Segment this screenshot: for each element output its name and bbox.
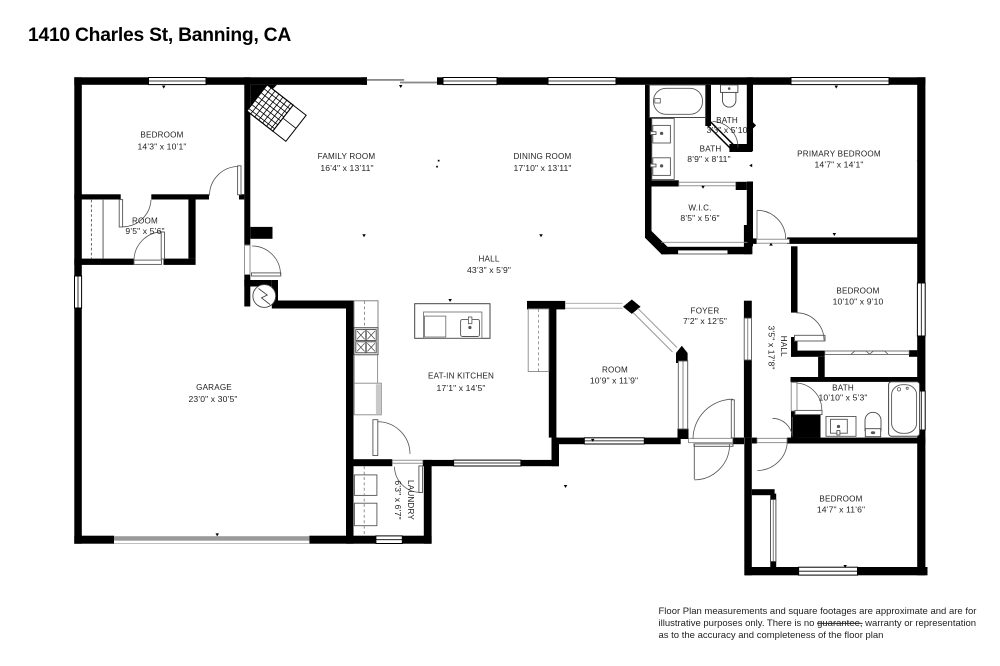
- svg-text:ROOM: ROOM: [602, 366, 628, 375]
- svg-text:10’10" x 9’10: 10’10" x 9’10: [833, 297, 884, 307]
- svg-text:43’3" x 5’9": 43’3" x 5’9": [467, 265, 511, 275]
- svg-text:LAUNDRY: LAUNDRY: [406, 480, 415, 520]
- svg-text:BEDROOM: BEDROOM: [819, 495, 862, 504]
- svg-text:16’4" x 13’11": 16’4" x 13’11": [320, 163, 373, 173]
- svg-text:7’2" x 12’5": 7’2" x 12’5": [683, 316, 727, 326]
- svg-text:BATH: BATH: [832, 384, 854, 393]
- svg-text:FOYER: FOYER: [691, 307, 720, 316]
- svg-text:FAMILY ROOM: FAMILY ROOM: [318, 152, 376, 161]
- svg-text:BEDROOM: BEDROOM: [140, 131, 183, 140]
- svg-text:8’9" x 8’11": 8’9" x 8’11": [687, 154, 730, 164]
- svg-text:3’3" x 5’10: 3’3" x 5’10: [707, 125, 748, 135]
- svg-text:14’3" x 10’1": 14’3" x 10’1": [138, 142, 187, 152]
- svg-text:1410 Charles St, Banning, CA: 1410 Charles St, Banning, CA: [28, 25, 291, 46]
- svg-text:8’5" x 5’6": 8’5" x 5’6": [680, 213, 719, 223]
- svg-text:illustrative purposes only. Th: illustrative purposes only. There is no …: [659, 618, 977, 629]
- svg-text:as to the accuracy and complet: as to the accuracy and completeness of t…: [659, 630, 884, 641]
- svg-text:10’9" x 11’9": 10’9" x 11’9": [590, 376, 638, 386]
- svg-text:Floor Plan measurements and sq: Floor Plan measurements and square foota…: [659, 606, 977, 617]
- svg-text:6’3" x 6’7": 6’3" x 6’7": [393, 480, 403, 519]
- svg-text:10’10" x 5’3": 10’10" x 5’3": [819, 393, 868, 403]
- svg-text:9’5" x 5’6": 9’5" x 5’6": [125, 226, 164, 236]
- svg-text:HALL: HALL: [779, 336, 788, 357]
- svg-text:GARAGE: GARAGE: [196, 383, 232, 392]
- svg-text:ROOM: ROOM: [132, 217, 158, 226]
- svg-text:17’10" x 13’11": 17’10" x 13’11": [513, 163, 571, 173]
- svg-text:14’7" x 14’1": 14’7" x 14’1": [815, 160, 864, 170]
- svg-text:EAT-IN KITCHEN: EAT-IN KITCHEN: [428, 372, 494, 381]
- svg-text:3’5" x 17’8": 3’5" x 17’8": [766, 325, 776, 369]
- svg-text:17’1" x 14’5": 17’1" x 14’5": [437, 383, 486, 393]
- svg-text:PRIMARY BEDROOM: PRIMARY BEDROOM: [797, 150, 881, 159]
- svg-text:W.I.C.: W.I.C.: [688, 204, 711, 213]
- svg-text:DINING ROOM: DINING ROOM: [514, 152, 572, 161]
- svg-text:BATH: BATH: [700, 145, 722, 154]
- svg-text:BEDROOM: BEDROOM: [836, 287, 879, 296]
- svg-text:14’7" x 11’6": 14’7" x 11’6": [817, 505, 865, 515]
- svg-text:23’0" x 30’5": 23’0" x 30’5": [189, 394, 238, 404]
- svg-text:BATH: BATH: [716, 116, 738, 125]
- svg-text:HALL: HALL: [478, 255, 499, 264]
